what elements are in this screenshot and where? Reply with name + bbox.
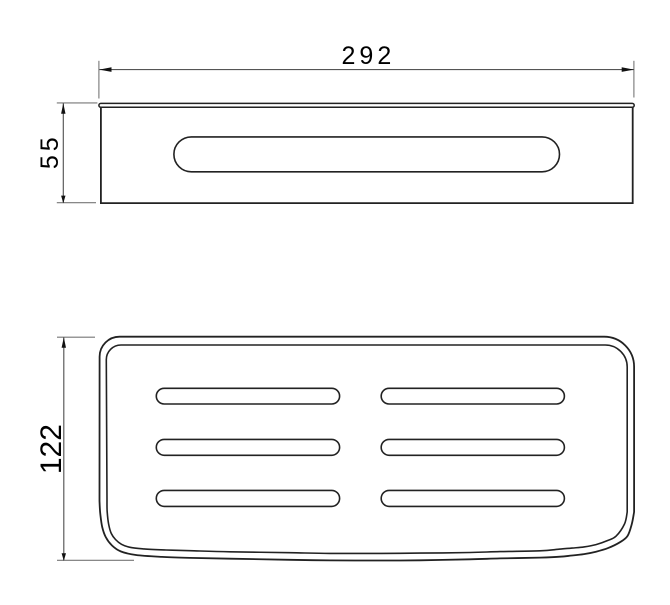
- svg-text:55: 55: [36, 133, 64, 169]
- svg-text:292: 292: [342, 42, 396, 70]
- svg-text:122: 122: [35, 424, 68, 474]
